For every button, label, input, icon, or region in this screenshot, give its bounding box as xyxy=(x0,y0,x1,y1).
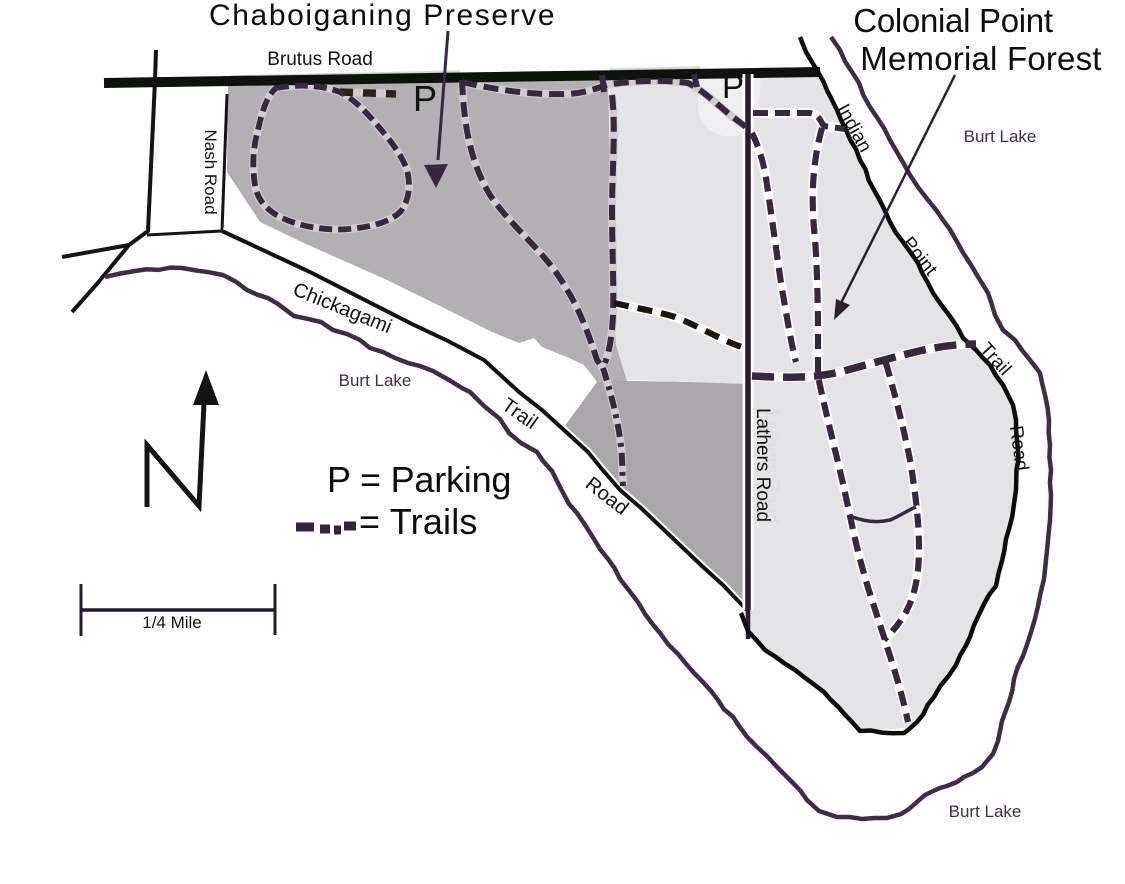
svg-text:1/4 Mile: 1/4 Mile xyxy=(142,613,202,632)
svg-text:Nash Road: Nash Road xyxy=(201,129,220,214)
svg-text:Brutus Road: Brutus Road xyxy=(267,49,373,70)
svg-text:P: P xyxy=(722,68,744,105)
svg-text:Lathers Road: Lathers Road xyxy=(752,408,773,522)
svg-text:P = Parking: P = Parking xyxy=(327,459,511,500)
svg-text:Burt Lake: Burt Lake xyxy=(339,371,412,390)
svg-text:Burt Lake: Burt Lake xyxy=(949,802,1022,821)
svg-text:Burt Lake: Burt Lake xyxy=(964,127,1037,146)
svg-text:Memorial Forest: Memorial Forest xyxy=(860,40,1101,77)
svg-text:P: P xyxy=(413,78,437,119)
svg-text:= Trails: = Trails xyxy=(359,501,478,542)
svg-text:Colonial Point: Colonial Point xyxy=(853,2,1053,39)
svg-text:Chaboiganing Preserve: Chaboiganing Preserve xyxy=(209,0,556,32)
